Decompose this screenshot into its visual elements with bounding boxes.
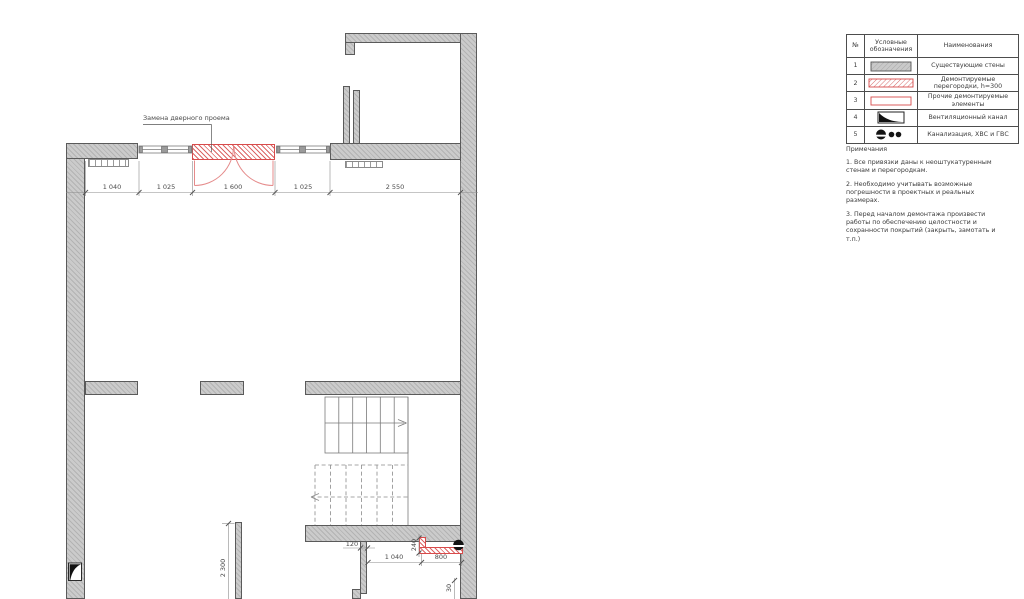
note-1: 1. Все привязки даны к неоштукатуренным … xyxy=(846,159,1001,175)
partition-room-2300 xyxy=(235,522,242,599)
plumbing-symbol xyxy=(865,126,918,143)
window-band-2 xyxy=(277,146,331,153)
notes-block: Примечания 1. Все привязки даны к неошту… xyxy=(846,146,1001,249)
legend-name-1: Существующие стены xyxy=(918,58,1019,75)
floor-plan-sheet: Замена дверного проема 1 040 1 025 1 600… xyxy=(0,0,1024,599)
dim-120: 120 xyxy=(346,540,358,548)
dim-240: 240 xyxy=(410,539,418,551)
upper-room-top-wall xyxy=(345,33,461,43)
dim-top-1025b: 1 025 xyxy=(294,183,313,191)
notes-title: Примечания xyxy=(846,146,1001,154)
demolished-door-opening xyxy=(192,144,275,160)
legend-name-5: Канализация, ХВС и ГВС xyxy=(918,126,1019,143)
partition-b xyxy=(200,381,244,395)
dim-top-2550: 2 550 xyxy=(386,183,405,191)
other-demolished-symbol xyxy=(865,92,918,109)
legend-row-2: 2 Демонтируемые перегородки, h=300 xyxy=(847,75,1019,92)
note-2: 2. Необходимо учитывать возможные погреш… xyxy=(846,181,1001,206)
window-band-1 xyxy=(139,146,192,153)
legend-num-5: 5 xyxy=(847,126,865,143)
note-3: 3. Перед началом демонтажа произвести ра… xyxy=(846,211,1001,244)
legend-row-1: 1 Существующие стены xyxy=(847,58,1019,75)
partition-a xyxy=(85,381,138,395)
legend-header-num: № xyxy=(847,35,865,58)
upper-room-wall-stub xyxy=(345,42,355,55)
wall-top-left xyxy=(66,143,138,159)
legend-name-3: Прочие демонтируемые элементы xyxy=(918,92,1019,109)
door-callout-label: Замена дверного проема xyxy=(143,114,230,122)
stairs-down-flight xyxy=(311,465,408,525)
existing-wall-symbol xyxy=(865,58,918,75)
radiator-2 xyxy=(345,161,383,168)
wall-left xyxy=(66,143,85,599)
dim-bottom-800: 800 xyxy=(435,553,447,561)
stairwell-top-wall xyxy=(305,381,461,395)
stairs-up-flight xyxy=(325,397,408,525)
legend-header-row: № Условные обозначения Наименования xyxy=(847,35,1019,58)
dim-top-1040: 1 040 xyxy=(103,183,122,191)
legend-name-2: Демонтируемые перегородки, h=300 xyxy=(918,75,1019,92)
radiator-1 xyxy=(88,159,129,167)
legend-num-1: 1 xyxy=(847,58,865,75)
partition-narrow-120 xyxy=(360,541,367,594)
legend-row-4: 4 Вентиляционный канал xyxy=(847,109,1019,126)
legend-row-3: 3 Прочие демонтируемые элементы xyxy=(847,92,1019,109)
wall-top-right xyxy=(330,143,461,160)
wall-right xyxy=(460,33,477,599)
legend-num-4: 4 xyxy=(847,109,865,126)
legend-num-3: 3 xyxy=(847,92,865,109)
legend-header-symbol: Условные обозначения xyxy=(865,35,918,58)
dim-top-1025a: 1 025 xyxy=(157,183,176,191)
vent-channel-symbol xyxy=(865,109,918,126)
dim-bottom-1040: 1 040 xyxy=(385,553,404,561)
demolished-partition-symbol xyxy=(865,75,918,92)
dim-top-1600: 1 600 xyxy=(224,183,243,191)
dim-30: 30 xyxy=(445,584,453,592)
legend-num-2: 2 xyxy=(847,75,865,92)
legend-name-4: Вентиляционный канал xyxy=(918,109,1019,126)
legend-header-name: Наименования xyxy=(918,35,1019,58)
dim-2300: 2 300 xyxy=(219,559,227,578)
legend-table: № Условные обозначения Наименования 1 xyxy=(846,34,1019,144)
legend-row-5: 5 Канализация, ХВС и ГВС xyxy=(847,126,1019,143)
duct-wall-a xyxy=(343,86,350,144)
duct-wall-b xyxy=(353,90,360,144)
stairwell-bottom-wall xyxy=(305,525,461,542)
bottom-wall-stub xyxy=(352,589,361,599)
